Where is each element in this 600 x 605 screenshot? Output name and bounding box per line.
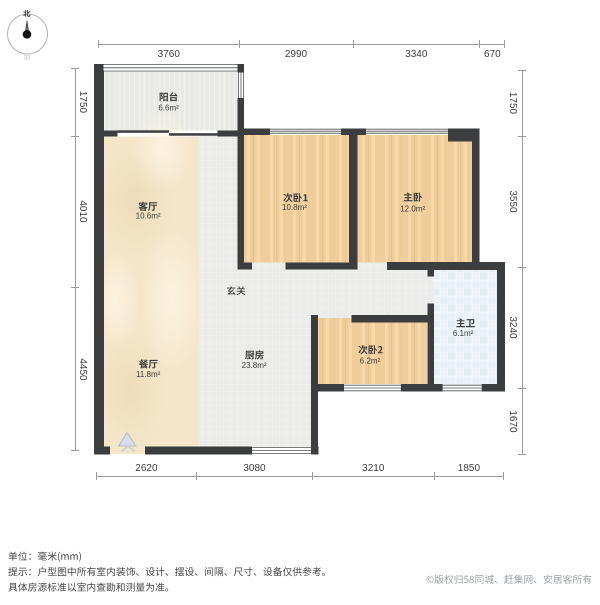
svg-text:3550: 3550 (507, 190, 518, 213)
svg-text:11.8m²: 11.8m² (136, 370, 161, 379)
svg-text:10.8m²: 10.8m² (282, 203, 307, 212)
svg-text:3240: 3240 (507, 316, 518, 339)
svg-text:1670: 1670 (507, 410, 518, 433)
svg-text:3210: 3210 (362, 463, 385, 474)
svg-text:2990: 2990 (285, 49, 308, 60)
svg-text:3080: 3080 (243, 463, 266, 474)
svg-text:10.6m²: 10.6m² (136, 212, 161, 221)
svg-text:23.8m²: 23.8m² (242, 361, 267, 370)
svg-text:12.0m²: 12.0m² (400, 205, 425, 214)
svg-text:6.1m²: 6.1m² (453, 329, 474, 338)
svg-text:670: 670 (484, 49, 501, 60)
svg-text:4450: 4450 (77, 358, 88, 381)
svg-text:4010: 4010 (77, 200, 88, 223)
svg-text:6.2m²: 6.2m² (360, 357, 381, 366)
svg-text:2620: 2620 (135, 463, 158, 474)
svg-text:1750: 1750 (77, 91, 88, 114)
svg-text:3760: 3760 (158, 49, 181, 60)
svg-text:1750: 1750 (507, 92, 518, 115)
svg-text:1850: 1850 (458, 463, 481, 474)
svg-text:3340: 3340 (405, 49, 428, 60)
svg-text:6.6m²: 6.6m² (158, 104, 179, 113)
